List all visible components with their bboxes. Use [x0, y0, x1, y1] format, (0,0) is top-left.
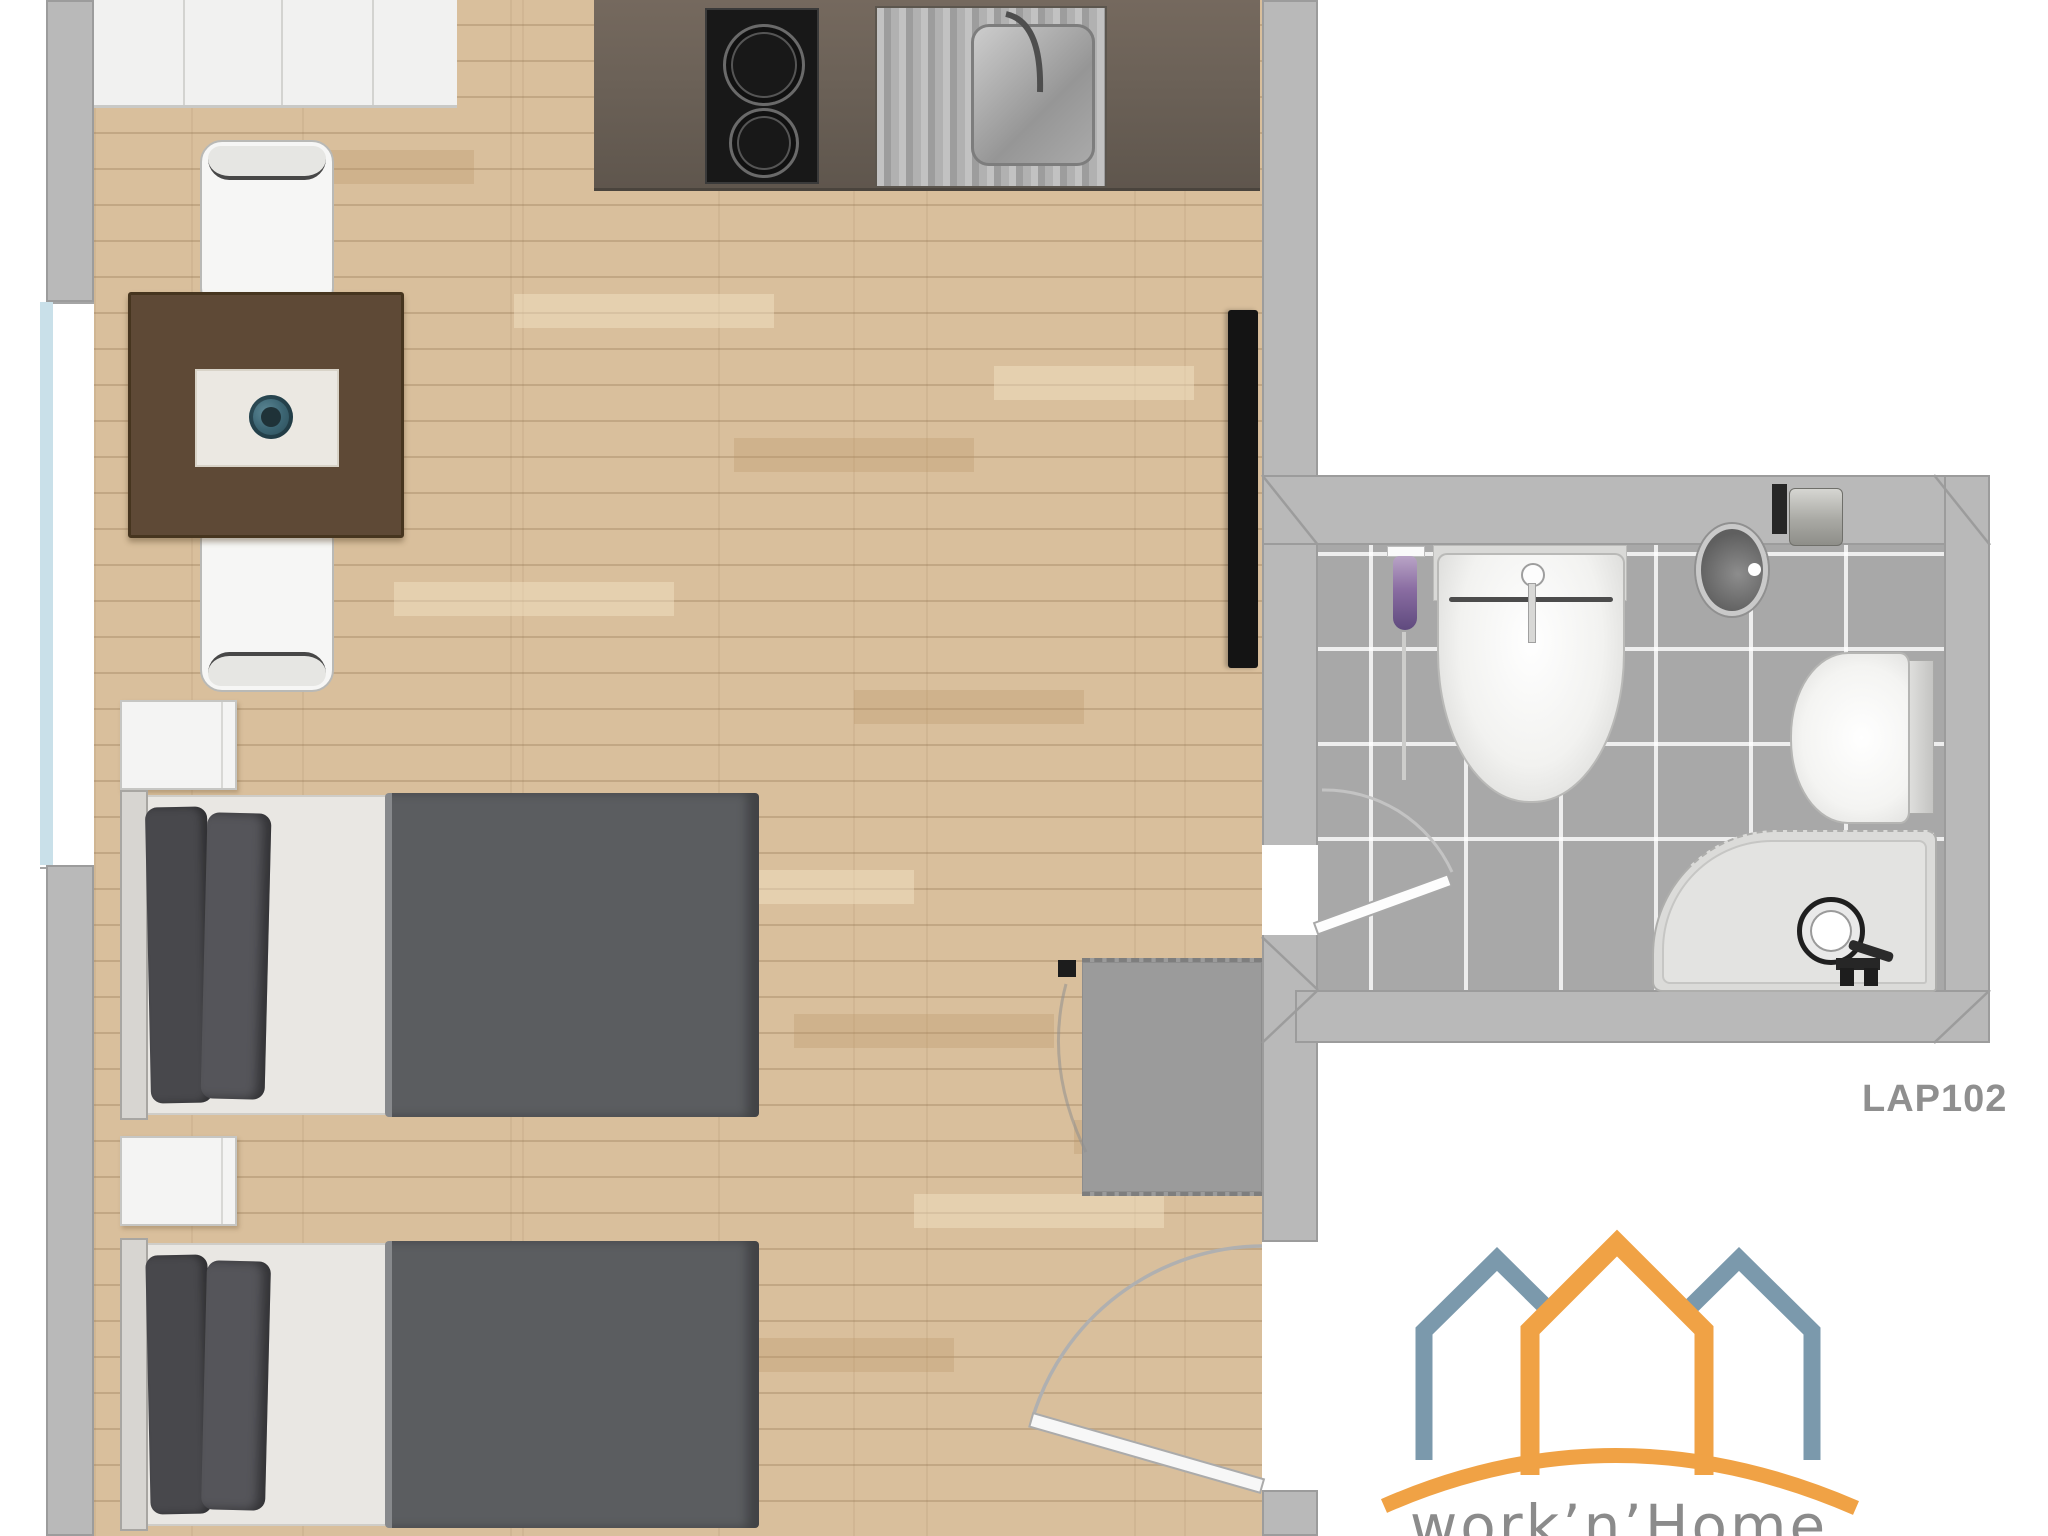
kitchen-counter: [594, 0, 1260, 191]
toilet-brush-stem: [1402, 632, 1406, 780]
headboard: [120, 1238, 148, 1531]
floor-plank: [514, 294, 774, 328]
logo-house-left: [1424, 1259, 1570, 1460]
chair-backrest: [208, 652, 326, 686]
burner-large: [723, 24, 805, 106]
wall-right-stub: [1262, 1490, 1318, 1536]
entry-door-opening: [1262, 1242, 1318, 1490]
plant-core: [261, 407, 281, 427]
table-plant: [249, 395, 293, 439]
toilet-brush: [1393, 556, 1417, 630]
basin-faucet-stem: [1528, 583, 1536, 643]
toilet: [1790, 652, 1910, 824]
entry-rug: [1082, 958, 1262, 1196]
floor-plank: [854, 690, 1084, 724]
logo-house-center: [1530, 1243, 1704, 1475]
shower-head: [1797, 897, 1865, 965]
logo-house-right: [1666, 1259, 1812, 1460]
pillow: [201, 1260, 271, 1510]
nightstand-1: [120, 700, 237, 790]
dining-table: [128, 292, 404, 538]
blanket: [385, 793, 759, 1117]
burner-small: [729, 108, 799, 178]
wardrobe-cabinets: [94, 0, 457, 108]
bathroom-wall-right: [1944, 475, 1990, 1043]
toilet-paper-bracket: [1772, 484, 1787, 534]
bed-1: [120, 795, 757, 1115]
shower-tray-inner: [1662, 840, 1927, 984]
sink-basin: [971, 24, 1095, 166]
chair-bottom: [200, 518, 334, 692]
cabinet-divider: [281, 0, 283, 105]
logo-houses: [1384, 1243, 1856, 1508]
bathroom-wall-bottom: [1295, 990, 1990, 1043]
cabinet-divider: [183, 0, 185, 105]
cooktop: [705, 8, 819, 184]
blanket: [385, 1241, 759, 1528]
floor-plank: [914, 1194, 1164, 1228]
bathroom-wall-top: [1262, 475, 1990, 545]
nightstand-2: [120, 1136, 237, 1226]
window-glass: [40, 302, 53, 865]
chair-top: [200, 140, 334, 310]
logo-text: work’n’Home: [1404, 1492, 1834, 1536]
mirror: [1696, 524, 1768, 616]
bathroom-door-opening: [1262, 845, 1318, 935]
shower-mixer-foot: [1840, 968, 1854, 986]
wall-hook: [1058, 960, 1076, 977]
unit-label: LAP102: [1862, 1078, 2007, 1121]
drawer-seam: [221, 1138, 223, 1224]
tv: [1228, 310, 1258, 668]
bed-2: [120, 1243, 757, 1526]
headboard: [120, 790, 148, 1120]
wall-right: [1262, 0, 1318, 1242]
cabinet-divider: [372, 0, 374, 105]
toilet-paper-roll: [1789, 488, 1843, 546]
floor-plank: [734, 438, 974, 472]
floor-plank: [794, 1014, 1054, 1048]
shower-mixer-foot: [1864, 968, 1878, 986]
pillow: [201, 812, 272, 1099]
chair-backrest: [208, 146, 326, 180]
floorplan-canvas: LAP102 work’n’Home: [0, 0, 2048, 1536]
kitchen-sink: [875, 6, 1107, 188]
wall-left-lower: [46, 865, 94, 1536]
floor-plank: [394, 582, 674, 616]
mirror-glint: [1748, 563, 1761, 576]
floor-plank: [994, 366, 1194, 400]
drawer-seam: [221, 702, 223, 788]
wall-left-upper: [46, 0, 94, 302]
